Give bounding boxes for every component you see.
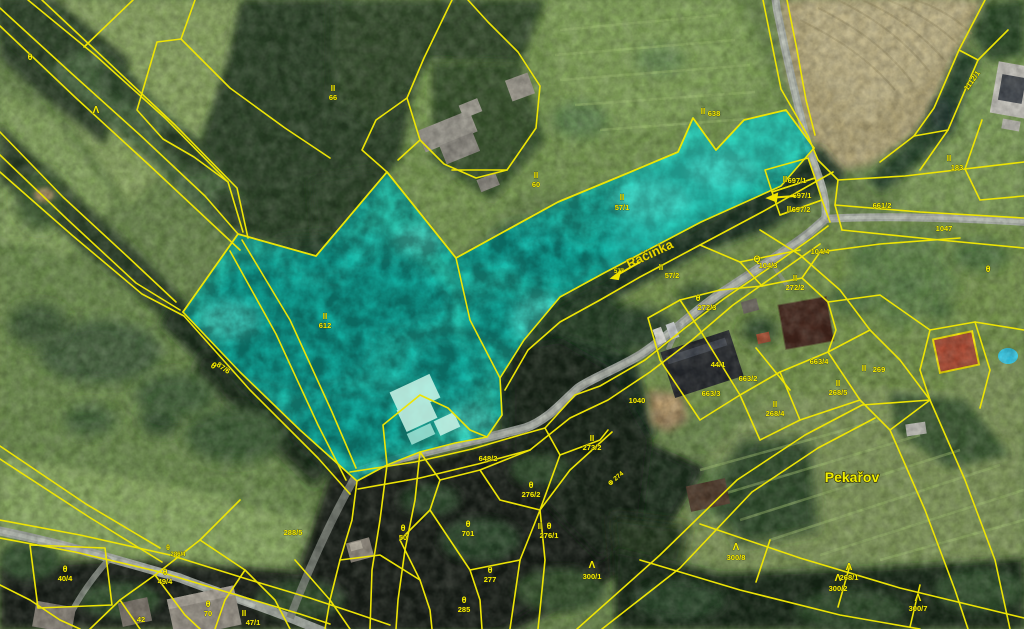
- svg-text:θ: θ: [547, 521, 552, 531]
- svg-text:648/2: 648/2: [479, 454, 498, 463]
- svg-text:661/2: 661/2: [873, 201, 892, 210]
- svg-text:300/1: 300/1: [583, 572, 602, 581]
- svg-text:268/4: 268/4: [766, 409, 786, 418]
- svg-text:638: 638: [708, 109, 721, 118]
- svg-text:II: II: [793, 274, 797, 283]
- svg-text:Λ: Λ: [733, 542, 740, 553]
- svg-text:II: II: [590, 434, 594, 443]
- svg-text:183: 183: [951, 163, 964, 172]
- svg-text:II: II: [947, 154, 951, 163]
- svg-text:θ: θ: [166, 545, 170, 552]
- svg-text:268/1: 268/1: [840, 573, 859, 582]
- svg-text:II: II: [620, 193, 624, 202]
- svg-text:276/1: 276/1: [540, 531, 559, 540]
- svg-text:66: 66: [329, 93, 337, 102]
- svg-text:θ: θ: [696, 293, 701, 303]
- svg-text:θ: θ: [63, 564, 68, 574]
- svg-text:Λ: Λ: [589, 560, 596, 571]
- svg-text:II: II: [242, 609, 246, 618]
- svg-text:57/1: 57/1: [615, 203, 630, 212]
- svg-text:θ: θ: [986, 264, 991, 274]
- svg-text:272/2: 272/2: [786, 283, 805, 292]
- svg-text:Λ: Λ: [915, 593, 922, 604]
- svg-text:104/3: 104/3: [759, 261, 778, 270]
- svg-text:268/5: 268/5: [829, 388, 848, 397]
- svg-text:θ: θ: [163, 567, 168, 577]
- svg-text:269: 269: [873, 365, 886, 374]
- svg-text:663/3: 663/3: [702, 389, 721, 398]
- svg-text:273/2: 273/2: [583, 443, 602, 452]
- svg-text:II: II: [773, 400, 777, 409]
- svg-text:697/1: 697/1: [788, 176, 807, 185]
- svg-text:272/3: 272/3: [698, 303, 717, 312]
- svg-text:II: II: [787, 205, 791, 214]
- svg-text:104/4: 104/4: [811, 247, 831, 256]
- svg-text:300/2: 300/2: [829, 584, 848, 593]
- svg-text:663/4: 663/4: [810, 357, 830, 366]
- svg-text:Q: Q: [753, 254, 760, 264]
- svg-text:50: 50: [399, 533, 407, 542]
- svg-text:θ: θ: [462, 595, 467, 605]
- svg-text:40/4: 40/4: [58, 574, 73, 583]
- svg-text:Λ: Λ: [835, 573, 842, 584]
- svg-text:42: 42: [137, 615, 145, 624]
- svg-text:1047: 1047: [936, 224, 953, 233]
- svg-text:277: 277: [484, 575, 497, 584]
- svg-text:θ: θ: [488, 565, 493, 575]
- svg-text:II: II: [331, 84, 335, 93]
- svg-text:θ: θ: [466, 519, 471, 529]
- svg-text:300/7: 300/7: [909, 604, 928, 613]
- svg-text:697/2: 697/2: [792, 205, 811, 214]
- svg-text:II: II: [659, 263, 663, 272]
- svg-text:70: 70: [204, 609, 212, 618]
- svg-text:60: 60: [532, 180, 540, 189]
- svg-text:44/1: 44/1: [711, 360, 726, 369]
- svg-text:Λ: Λ: [93, 105, 100, 116]
- svg-text:II: II: [538, 522, 542, 531]
- svg-text:286/4: 286/4: [170, 552, 186, 558]
- svg-text:47/1: 47/1: [246, 618, 261, 627]
- svg-text:θ: θ: [206, 599, 211, 609]
- svg-text:II: II: [701, 107, 705, 116]
- svg-text:1040: 1040: [629, 396, 646, 405]
- svg-text:57/2: 57/2: [665, 271, 680, 280]
- svg-text:Λ: Λ: [846, 562, 853, 573]
- svg-text:49/4: 49/4: [158, 577, 173, 586]
- svg-text:663/2: 663/2: [739, 374, 758, 383]
- svg-text:II: II: [323, 312, 327, 321]
- svg-text:612: 612: [319, 321, 332, 330]
- svg-text:II: II: [534, 171, 538, 180]
- svg-text:II: II: [862, 364, 866, 373]
- svg-text:285: 285: [458, 605, 471, 614]
- svg-text:θ: θ: [529, 480, 534, 490]
- svg-text:300/8: 300/8: [727, 553, 746, 562]
- svg-text:θ: θ: [28, 52, 33, 62]
- svg-text:288/5: 288/5: [284, 528, 303, 537]
- svg-text:II: II: [783, 175, 787, 184]
- svg-text:II: II: [836, 379, 840, 388]
- svg-text:θ: θ: [401, 523, 406, 533]
- svg-text:701: 701: [462, 529, 475, 538]
- svg-text:Pekařov: Pekařov: [825, 469, 880, 485]
- svg-text:276/2: 276/2: [522, 490, 541, 499]
- svg-text:697/1: 697/1: [793, 191, 812, 200]
